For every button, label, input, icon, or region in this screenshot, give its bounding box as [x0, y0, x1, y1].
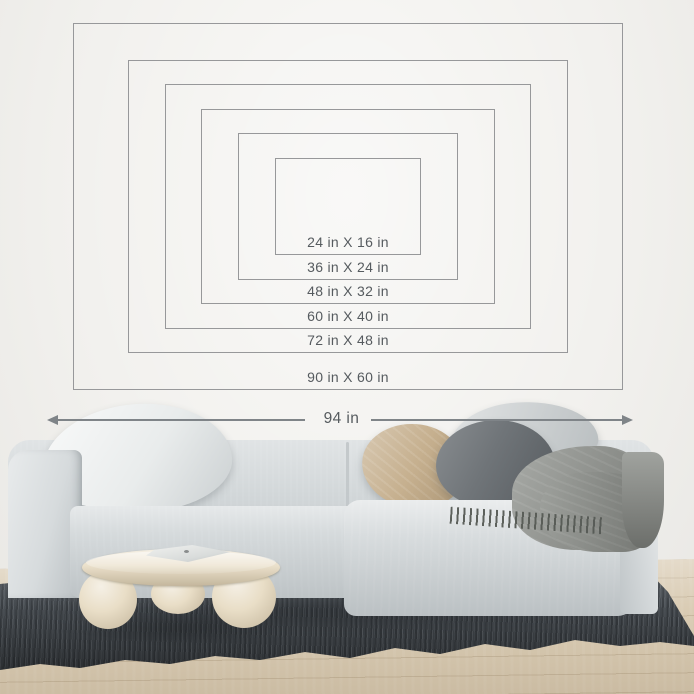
arrow-left-segment	[56, 419, 305, 421]
size-frame-90x60	[73, 23, 623, 390]
overall-width-label: 94 in	[324, 410, 360, 428]
size-label-90x60: 90 in X 60 in	[268, 368, 428, 386]
arrow-right-head-icon	[622, 415, 633, 425]
wall-art-size-guide-image: 24 in X 16 in36 in X 24 in48 in X 32 in6…	[0, 0, 694, 694]
overall-width-arrow: 94 in	[47, 412, 633, 428]
arrow-right-segment	[371, 419, 624, 421]
nested-size-frames: 24 in X 16 in36 in X 24 in48 in X 32 in6…	[0, 0, 694, 694]
